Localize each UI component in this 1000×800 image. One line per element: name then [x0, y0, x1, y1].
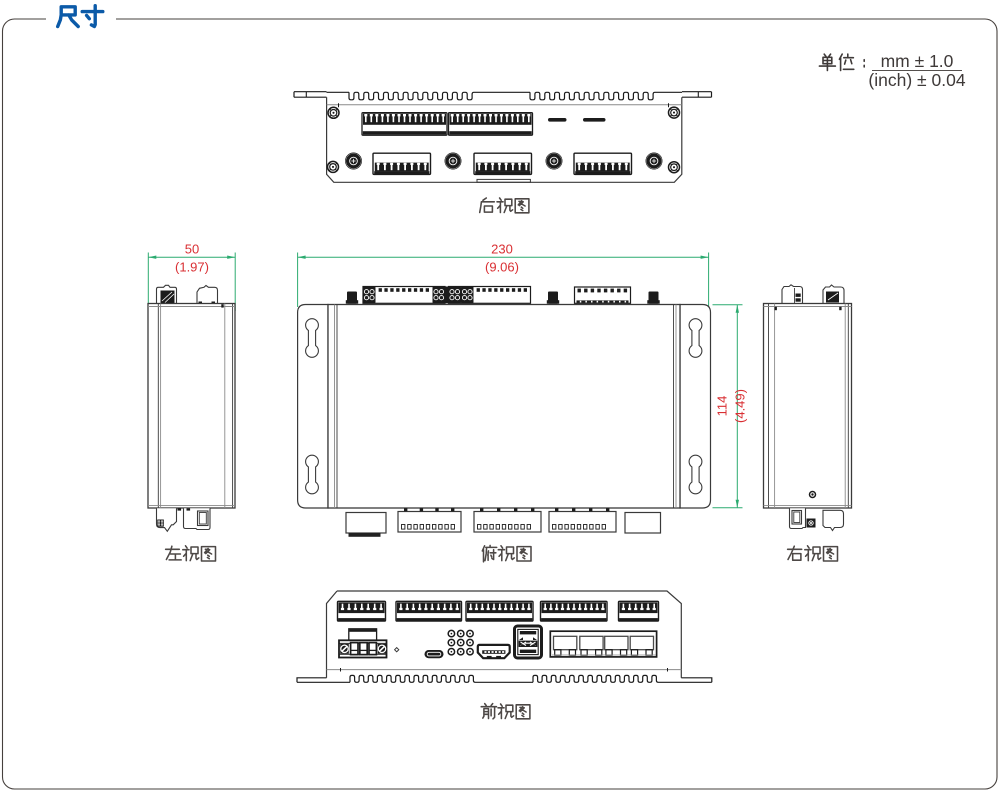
svg-text:230: 230: [491, 242, 513, 257]
svg-text:(4.49): (4.49): [733, 389, 748, 423]
svg-text:(1.97): (1.97): [175, 260, 209, 275]
svg-text:(9.06): (9.06): [485, 260, 519, 275]
svg-text:114: 114: [715, 396, 730, 417]
svg-text:50: 50: [185, 242, 199, 257]
svg-text:(inch) ± 0.04: (inch) ± 0.04: [868, 70, 965, 90]
svg-text:mm ± 1.0: mm ± 1.0: [881, 51, 954, 71]
